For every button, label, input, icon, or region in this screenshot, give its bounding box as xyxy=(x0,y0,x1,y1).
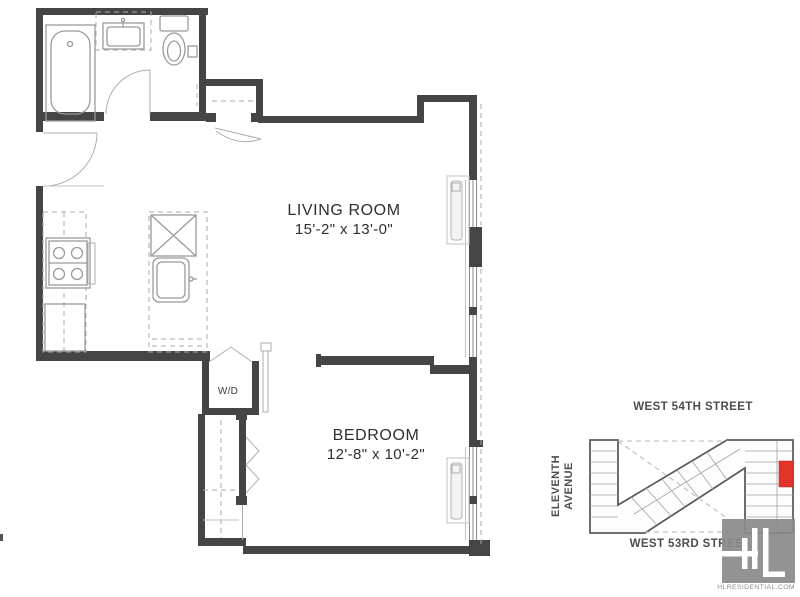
print-tick xyxy=(0,534,3,541)
website-label: HLRESIDENTIAL.COM xyxy=(695,584,795,591)
avenue-line-1: ELEVENTH xyxy=(550,426,563,546)
entry-door-swing xyxy=(43,133,104,186)
vanity-sink xyxy=(96,12,151,50)
bedroom-label: BEDROOM xyxy=(276,427,476,445)
towel-holder xyxy=(188,46,197,57)
floorplan-drawing xyxy=(0,0,800,597)
washer-dryer-label: W/D xyxy=(206,386,250,397)
window-bedroom-2 xyxy=(470,504,477,540)
avenue-line-2: AVENUE xyxy=(563,426,576,546)
bedroom-closet-interior xyxy=(203,420,239,538)
walls xyxy=(36,8,490,556)
living-room-dimensions: 15'-2" x 13'-0" xyxy=(244,221,444,238)
kitchen-sink xyxy=(153,258,197,302)
bathtub xyxy=(46,25,95,121)
living-room-label: LIVING ROOM xyxy=(244,202,444,220)
kitchen-island xyxy=(149,212,207,352)
bathroom-door-swing xyxy=(106,70,150,114)
washer-dryer-closet xyxy=(209,347,252,362)
street-label-west-54th: WEST 54TH STREET xyxy=(593,401,793,413)
toilet xyxy=(160,16,188,65)
avenue-label-eleventh: ELEVENTH AVENUE xyxy=(550,426,576,546)
kitchen-cabinet xyxy=(45,304,85,351)
dishwasher xyxy=(151,215,196,256)
window-living-1 xyxy=(470,180,477,227)
window-living-3 xyxy=(470,315,477,357)
bedroom-dimensions: 12'-8" x 10'-2" xyxy=(276,446,476,463)
kitchen-stove xyxy=(46,238,95,288)
highlighted-unit xyxy=(779,461,793,487)
hl-logo xyxy=(722,519,795,583)
window-living-2 xyxy=(470,267,477,307)
bedroom-door xyxy=(261,343,271,412)
